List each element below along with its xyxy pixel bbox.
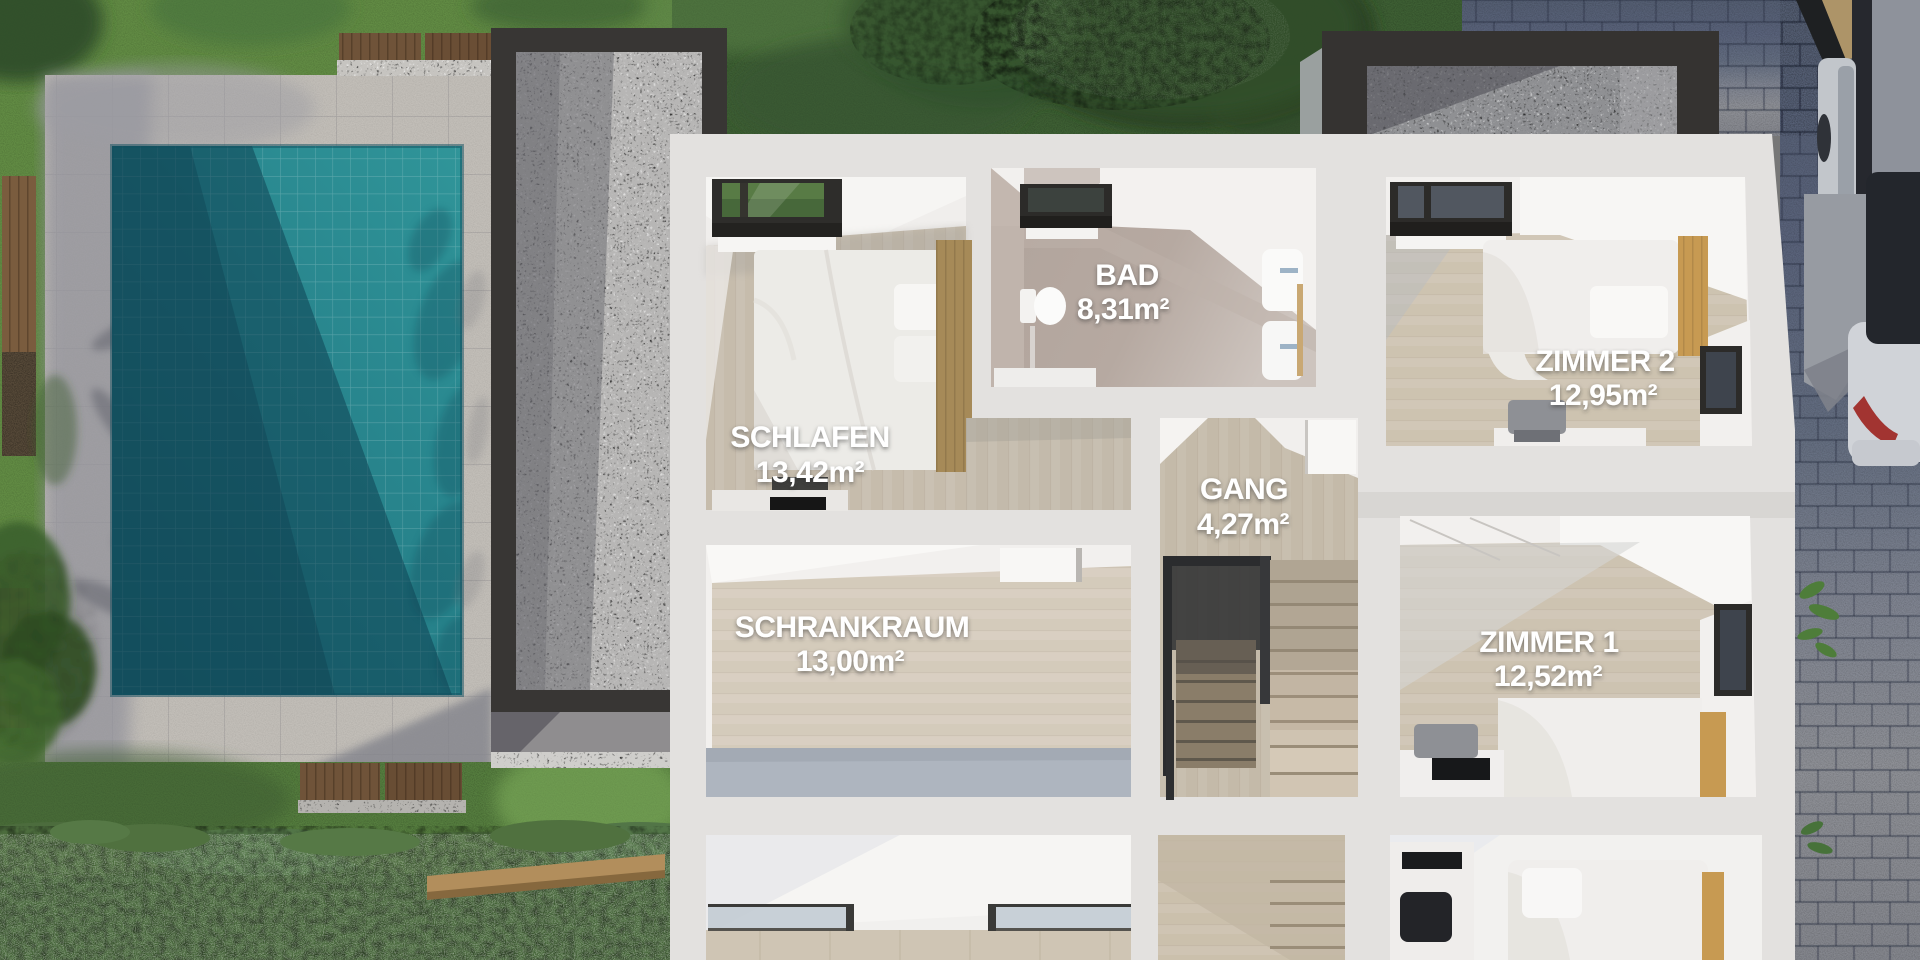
- svg-text:SCHLAFEN: SCHLAFEN: [730, 421, 889, 454]
- svg-text:13,00m²: 13,00m²: [796, 645, 905, 678]
- svg-text:ZIMMER 2: ZIMMER 2: [1535, 345, 1674, 378]
- svg-text:BAD: BAD: [1095, 259, 1159, 292]
- svg-text:4,27m²: 4,27m²: [1197, 508, 1290, 541]
- svg-text:8,31m²: 8,31m²: [1077, 293, 1170, 326]
- svg-text:SCHRANKRAUM: SCHRANKRAUM: [735, 611, 970, 644]
- svg-text:ZIMMER 1: ZIMMER 1: [1479, 626, 1618, 659]
- svg-text:12,95m²: 12,95m²: [1549, 379, 1658, 412]
- svg-text:13,42m²: 13,42m²: [756, 456, 865, 489]
- svg-text:GANG: GANG: [1200, 473, 1288, 506]
- svg-text:12,52m²: 12,52m²: [1494, 660, 1603, 693]
